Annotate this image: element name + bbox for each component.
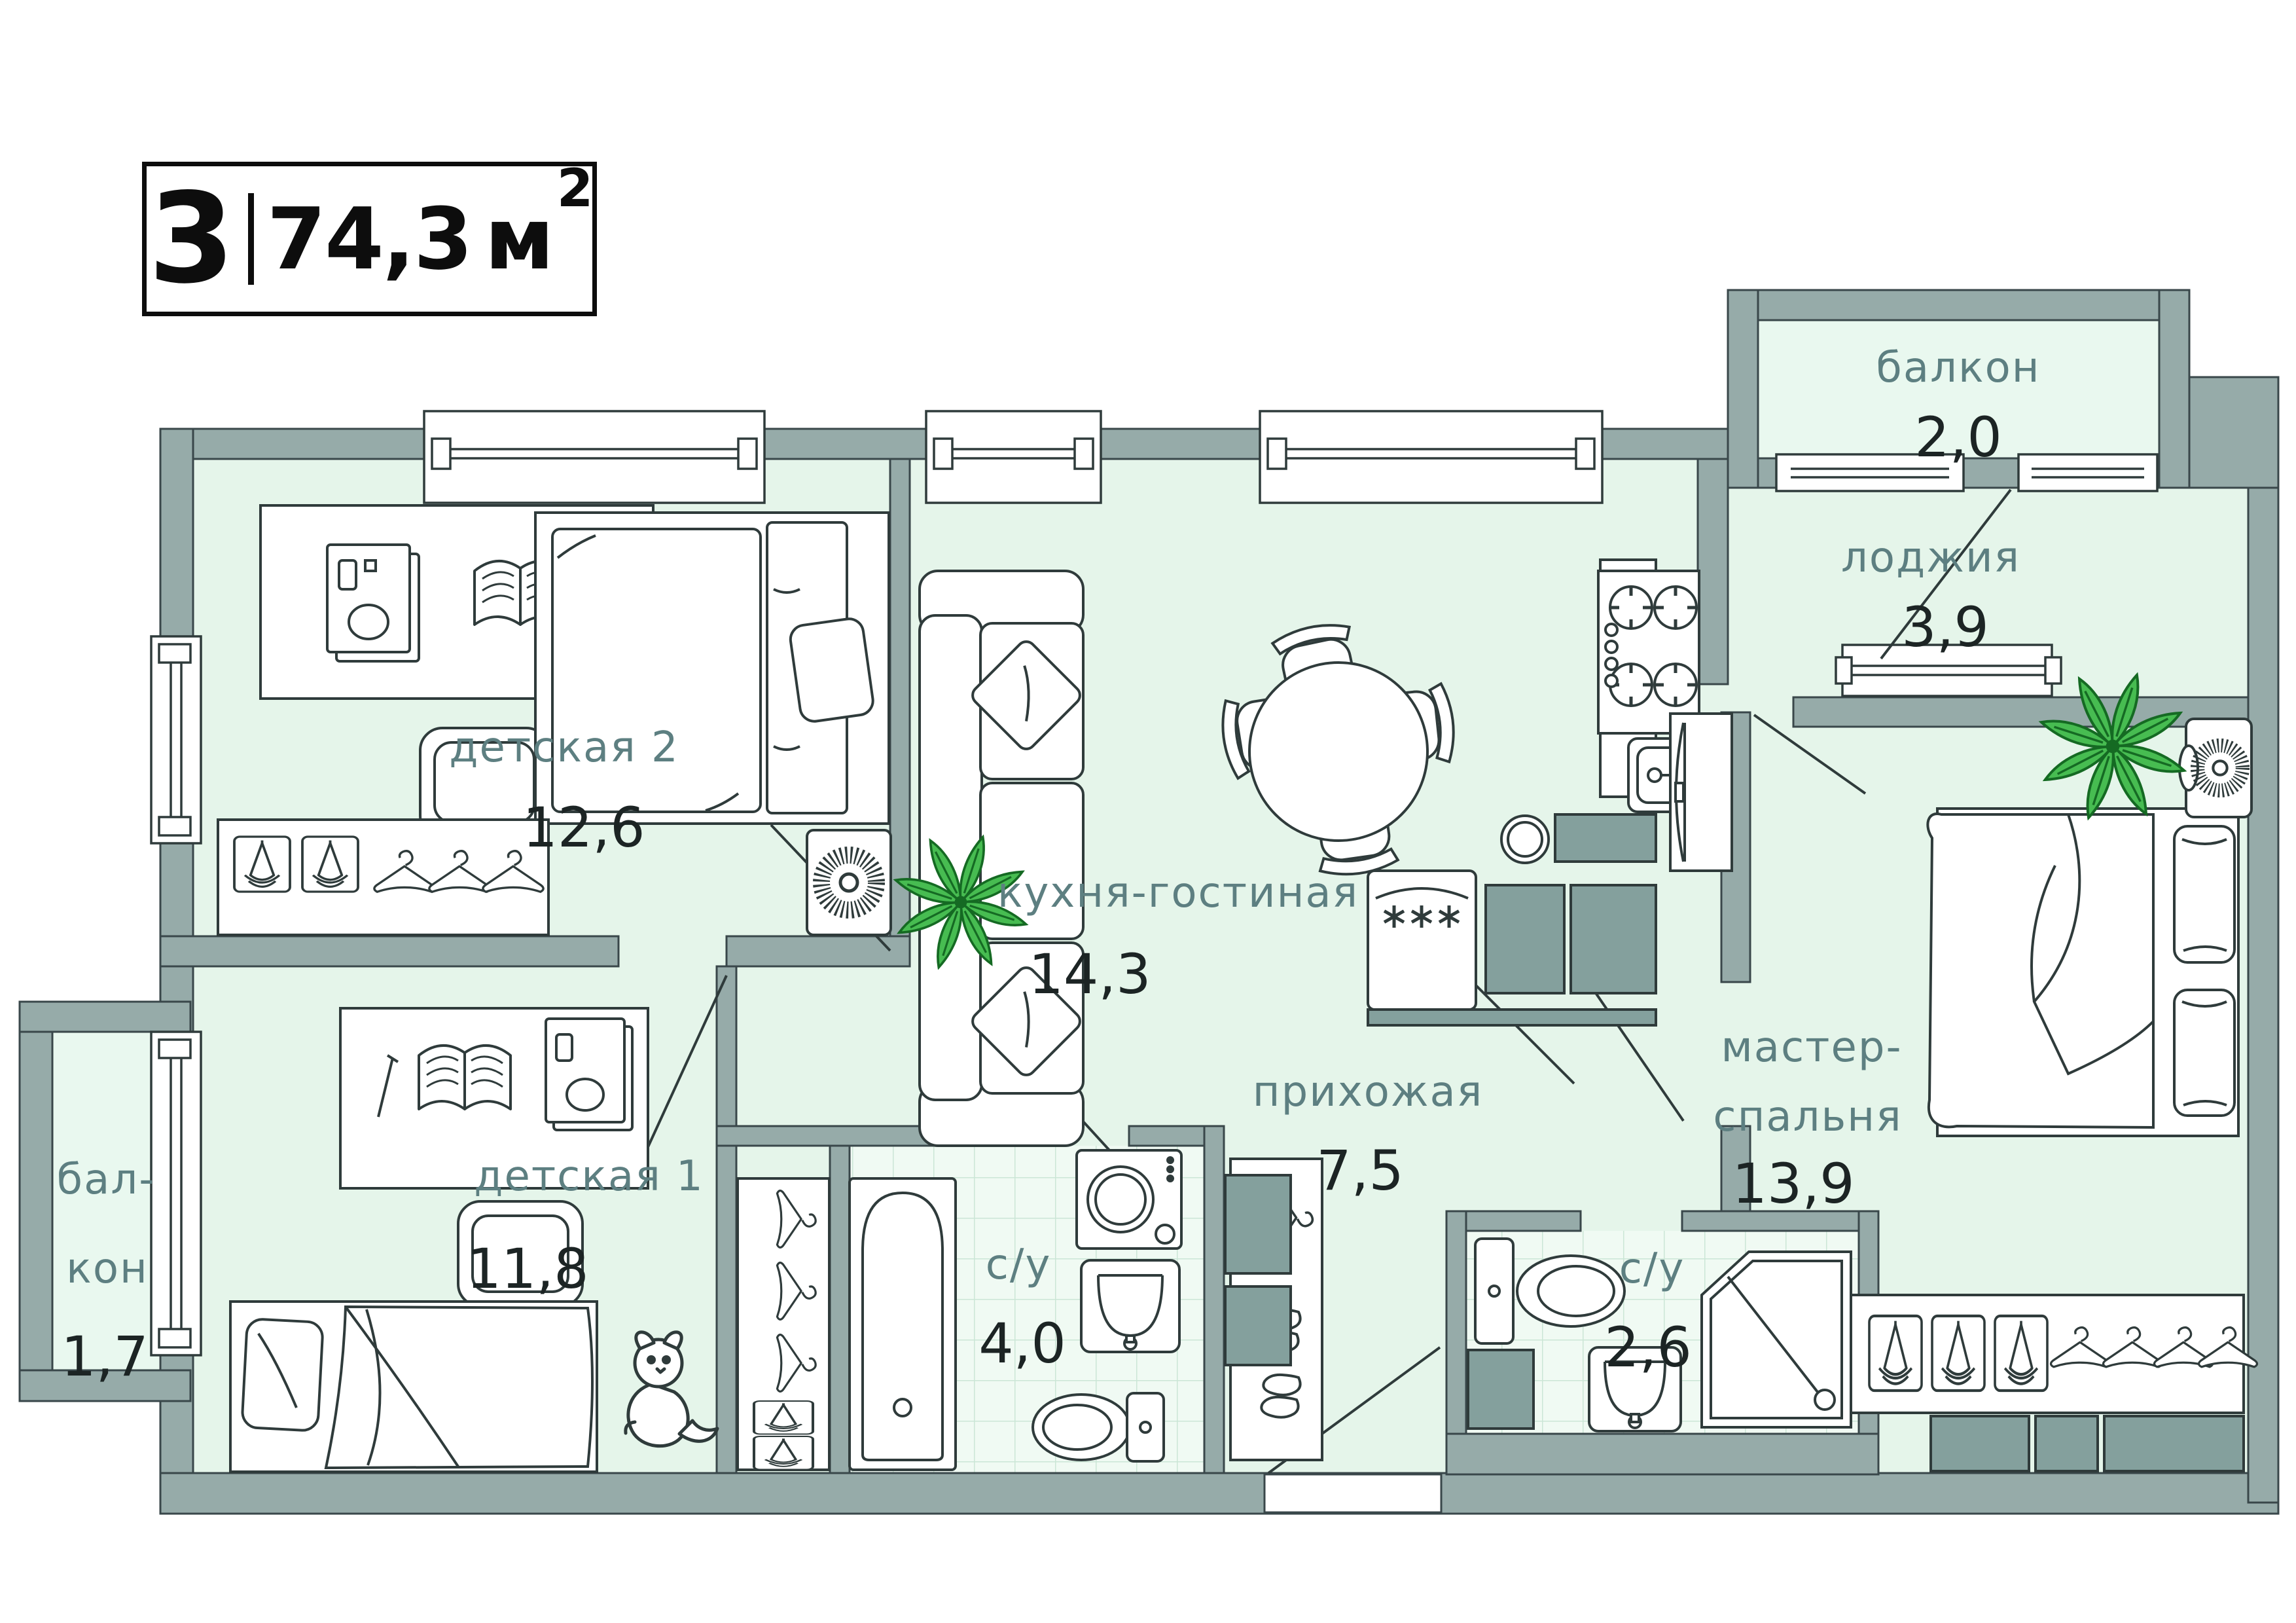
apartment-badge: 3 74,3 м2	[142, 162, 597, 316]
room-label-balcony-top: балкон	[1876, 347, 2040, 389]
room-area-loggia: 3,9	[1901, 600, 1989, 655]
storage-box-icon	[1932, 1316, 1984, 1391]
washing-machine-icon	[1077, 1150, 1181, 1249]
toilet-icon	[1033, 1393, 1164, 1461]
room-area-balcony-top: 2,0	[1914, 410, 2002, 465]
room-label-bathroom-main: с/у	[986, 1244, 1052, 1286]
hall-cabinet	[1225, 1286, 1291, 1365]
pillow-icon	[789, 617, 875, 723]
storage-box-icon	[234, 837, 290, 892]
floor-plan: 3 74,3 м2 балкон 2,0 лоджия 3,9 детская …	[0, 0, 2296, 1623]
window-icon	[2018, 454, 2157, 491]
badge-divider	[248, 193, 254, 285]
room-area-nursery2: 12,6	[522, 800, 645, 855]
room-area-bathroom-main: 4,0	[978, 1316, 1066, 1371]
room-label-kitchen-living: кухня-гостиная	[997, 872, 1359, 914]
storage-box-icon	[754, 1401, 813, 1434]
room-area-hallway: 7,5	[1316, 1143, 1404, 1198]
wardrobe-icon	[218, 820, 548, 935]
fridge-icon	[1368, 871, 1476, 1010]
room-area-nursery1: 11,8	[466, 1241, 588, 1296]
room-label-nursery2: детская 2	[449, 727, 679, 769]
room-area-bathroom-master: 2,6	[1604, 1320, 1692, 1375]
kitchen-cabinet	[1555, 814, 1656, 862]
room-label-balcony-left-line1: бал-	[57, 1159, 156, 1201]
shower-icon	[1702, 1252, 1851, 1427]
hall-cabinet	[1225, 1175, 1291, 1273]
washbasin-icon	[1081, 1260, 1179, 1352]
dresser	[2104, 1416, 2244, 1471]
bath-cabinet	[1468, 1350, 1534, 1429]
window-icon	[151, 1032, 201, 1355]
laptop-icon	[327, 545, 419, 661]
room-label-loggia: лоджия	[1841, 537, 2020, 579]
window-icon	[926, 411, 1101, 503]
single-bed-icon	[535, 513, 889, 824]
entry-door-gap	[1265, 1474, 1441, 1512]
kitchen-cabinet	[1486, 885, 1564, 993]
badge-area-unit: м2	[485, 196, 591, 282]
storage-box-icon	[1995, 1316, 2047, 1391]
badge-area-value: 74,3	[267, 196, 472, 282]
pillow-icon	[2174, 990, 2234, 1116]
dresser	[1931, 1416, 2029, 1471]
room-label-master-line2: спальня	[1713, 1096, 1902, 1138]
wardrobe-icon	[738, 1178, 829, 1470]
room-label-hallway: прихожая	[1253, 1071, 1483, 1113]
storage-box-icon	[754, 1436, 813, 1469]
book-icon	[419, 1046, 511, 1109]
single-bed-icon	[230, 1302, 597, 1472]
speaker-icon	[2179, 719, 2251, 817]
room-area-kitchen-living: 14,3	[1028, 947, 1151, 1002]
plate-icon	[1508, 822, 1542, 856]
stove-icon	[1598, 571, 1699, 733]
dresser	[2036, 1416, 2098, 1471]
room-label-nursery1: детская 1	[474, 1156, 704, 1197]
bathtub-icon	[850, 1178, 956, 1470]
room-label-master-line1: мастер-	[1721, 1027, 1902, 1068]
room-label-balcony-left-line2: кон	[66, 1248, 149, 1290]
kitchen-plinth	[1368, 1010, 1656, 1025]
window-icon	[1260, 411, 1602, 503]
pillow-icon	[2174, 826, 2234, 962]
pillow-icon	[242, 1319, 323, 1431]
laptop-icon	[546, 1019, 632, 1130]
speaker-icon	[807, 830, 891, 935]
badge-rooms-count: 3	[149, 177, 235, 301]
room-area-master: 13,9	[1732, 1156, 1854, 1211]
storage-box-icon	[302, 837, 358, 892]
window-icon	[151, 636, 201, 843]
window-icon	[424, 411, 764, 503]
room-area-balcony-left: 1,7	[61, 1329, 149, 1384]
wardrobe-icon	[1851, 1295, 2257, 1413]
double-bed-icon	[1928, 809, 2238, 1136]
kitchen-cabinet	[1571, 885, 1656, 993]
storage-box-icon	[1869, 1316, 1922, 1391]
sliding-wardrobe-icon	[1670, 714, 1732, 871]
room-label-bathroom-master: с/у	[1619, 1248, 1685, 1290]
